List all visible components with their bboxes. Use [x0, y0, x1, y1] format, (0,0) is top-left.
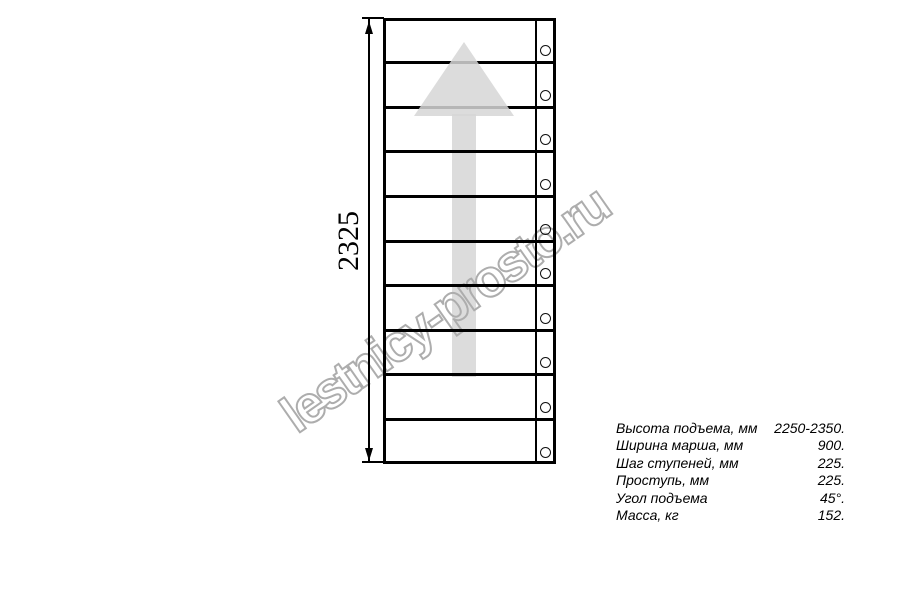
step-divider	[383, 150, 556, 153]
screw-hole-icon	[540, 402, 551, 413]
dimension-arrowhead-up-icon	[365, 21, 373, 34]
dimension-line	[368, 19, 370, 463]
screw-hole-icon	[540, 313, 551, 324]
step-divider	[383, 284, 556, 287]
spec-label: Ширина марша, мм	[616, 437, 743, 454]
step-divider	[383, 418, 556, 421]
spec-label: Масса, кг	[616, 507, 679, 524]
screw-hole-icon	[540, 90, 551, 101]
step-divider	[383, 373, 556, 376]
spec-label: Высота подъема, мм	[616, 420, 758, 437]
screw-hole-icon	[540, 179, 551, 190]
dimension-extension-top	[362, 17, 384, 19]
spec-value: 900.	[818, 437, 845, 454]
spec-value: 2250-2350.	[774, 420, 845, 437]
step-divider	[383, 329, 556, 332]
spec-row: Масса, кг152.	[616, 507, 845, 524]
spec-row: Шаг ступеней, мм225.	[616, 455, 845, 472]
screw-hole-icon	[540, 447, 551, 458]
dimension-value: 2325	[334, 196, 364, 286]
spec-label: Проступь, мм	[616, 472, 709, 489]
step-divider	[383, 240, 556, 243]
spec-label: Угол подъема	[616, 490, 708, 507]
spec-value: 152.	[818, 507, 845, 524]
spec-row: Ширина марша, мм900.	[616, 437, 845, 454]
spec-value: 225.	[818, 472, 845, 489]
dimension-extension-bottom	[362, 461, 384, 463]
spec-row: Высота подъема, мм2250-2350.	[616, 420, 845, 437]
spec-label: Шаг ступеней, мм	[616, 455, 739, 472]
step-divider	[383, 195, 556, 198]
dimension-arrowhead-down-icon	[365, 448, 373, 461]
spec-value: 45°.	[820, 490, 845, 507]
specs-list: Высота подъема, мм2250-2350.Ширина марша…	[616, 420, 845, 524]
spec-value: 225.	[818, 455, 845, 472]
spec-row: Проступь, мм225.	[616, 472, 845, 489]
screw-hole-icon	[540, 224, 551, 235]
up-arrow-head-icon	[414, 42, 514, 116]
staircase-drawing-canvas: lestnicy-prosto.ru 2325 Высота подъема, …	[0, 0, 900, 600]
spec-row: Угол подъема45°.	[616, 490, 845, 507]
